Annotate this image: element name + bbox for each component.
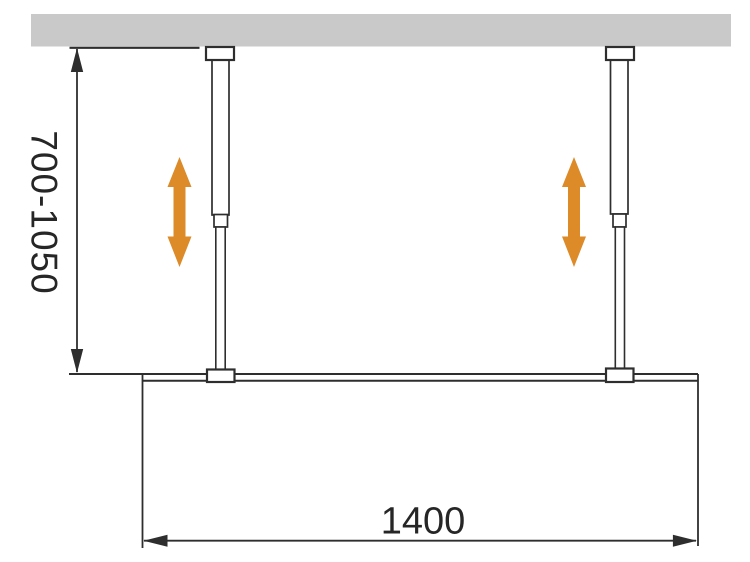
svg-text:700-1050: 700-1050 bbox=[23, 130, 64, 294]
svg-text:1400: 1400 bbox=[381, 501, 466, 543]
